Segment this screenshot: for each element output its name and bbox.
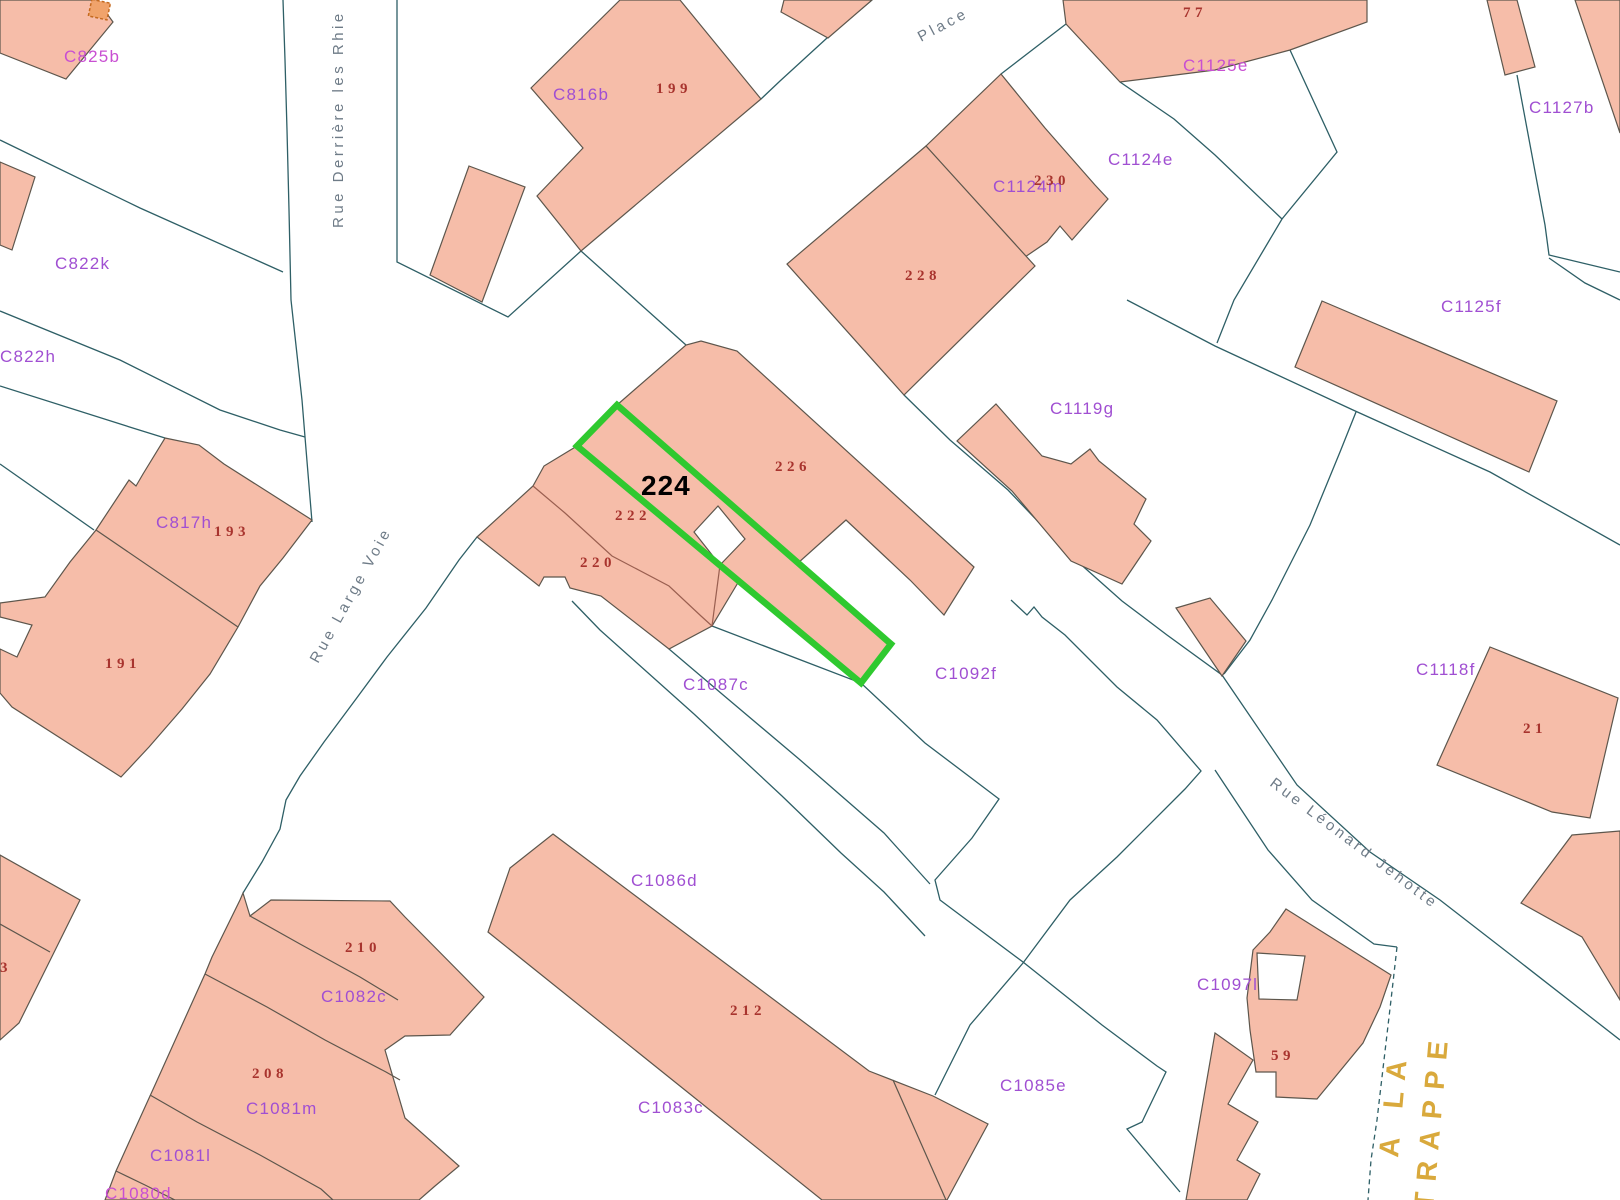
svg-text:C1118f: C1118f xyxy=(1416,660,1476,679)
svg-text:C822h: C822h xyxy=(0,347,56,366)
svg-text:222: 222 xyxy=(615,508,651,524)
svg-text:C1083c: C1083c xyxy=(638,1098,704,1117)
svg-text:C1119g: C1119g xyxy=(1050,399,1114,418)
svg-text:C1082c: C1082c xyxy=(321,987,387,1006)
svg-text:C1124e: C1124e xyxy=(1108,150,1174,169)
svg-text:C816b: C816b xyxy=(553,85,609,104)
svg-text:21: 21 xyxy=(1523,721,1547,737)
svg-text:228: 228 xyxy=(905,268,941,284)
svg-text:C825b: C825b xyxy=(64,47,120,66)
svg-text:C1125f: C1125f xyxy=(1441,297,1502,316)
svg-text:77: 77 xyxy=(1183,5,1207,21)
svg-text:Rue Derrière les Rhie: Rue Derrière les Rhie xyxy=(330,10,347,228)
svg-text:C1085e: C1085e xyxy=(1000,1076,1067,1095)
svg-text:C1081m: C1081m xyxy=(246,1099,317,1118)
svg-text:210: 210 xyxy=(345,940,381,956)
svg-text:59: 59 xyxy=(1271,1048,1295,1064)
svg-text:C1087c: C1087c xyxy=(683,675,749,694)
svg-text:C1097l: C1097l xyxy=(1197,975,1258,994)
svg-text:C817h: C817h xyxy=(156,513,212,532)
svg-text:208: 208 xyxy=(252,1066,288,1082)
svg-text:C1127b: C1127b xyxy=(1529,98,1595,117)
svg-text:226: 226 xyxy=(775,459,811,475)
svg-text:230: 230 xyxy=(1034,173,1070,189)
svg-text:C822k: C822k xyxy=(55,254,110,273)
svg-text:C1092f: C1092f xyxy=(935,664,997,683)
svg-text:224: 224 xyxy=(641,470,691,501)
svg-text:199: 199 xyxy=(656,81,692,97)
svg-text:C1080d: C1080d xyxy=(105,1184,172,1200)
svg-text:220: 220 xyxy=(580,555,616,571)
svg-text:191: 191 xyxy=(105,656,141,672)
svg-text:193: 193 xyxy=(214,524,250,540)
svg-text:C1086d: C1086d xyxy=(631,871,698,890)
svg-text:C1081l: C1081l xyxy=(150,1146,211,1165)
svg-text:3: 3 xyxy=(0,960,12,976)
svg-text:212: 212 xyxy=(730,1003,766,1019)
svg-text:C1125e: C1125e xyxy=(1183,56,1249,75)
